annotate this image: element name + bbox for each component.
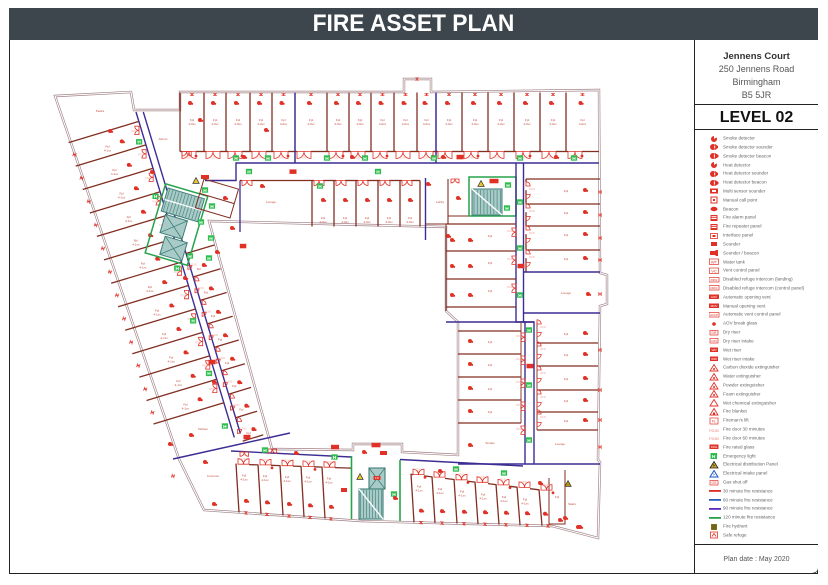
svg-text:FD30: FD30: [138, 154, 145, 157]
svg-text:FD30: FD30: [131, 130, 138, 133]
svg-text:WRI: WRI: [711, 357, 717, 361]
svg-text:Fpl: Fpl: [197, 267, 202, 271]
svg-text:Lobby: Lobby: [436, 200, 445, 204]
svg-text:FD30: FD30: [493, 157, 500, 160]
svg-text:FD30: FD30: [516, 335, 523, 338]
svg-text:FD30: FD30: [458, 474, 465, 477]
svg-text:4-1xx: 4-1xx: [104, 149, 112, 153]
svg-text:H: H: [188, 254, 192, 260]
svg-text:4-0xx: 4-0xx: [497, 122, 505, 126]
svg-text:FD30: FD30: [516, 381, 523, 384]
svg-text:H: H: [234, 156, 238, 162]
svg-text:4-0xx: 4-0xx: [280, 122, 288, 126]
svg-text:H: H: [502, 471, 506, 477]
svg-text:GS: GS: [712, 481, 718, 485]
svg-text:H: H: [527, 438, 531, 444]
svg-text:H: H: [209, 236, 213, 242]
svg-text:FD30: FD30: [529, 188, 536, 191]
svg-text:Fpl: Fpl: [488, 363, 493, 367]
svg-text:FD30: FD30: [415, 468, 422, 471]
svg-text:H: H: [325, 156, 329, 162]
svg-text:Fpl: Fpl: [488, 387, 493, 391]
svg-text:FD30: FD30: [219, 357, 226, 360]
svg-text:H: H: [318, 184, 322, 190]
svg-text:DRIC: DRIC: [710, 287, 718, 291]
svg-text:Fpl: Fpl: [564, 257, 569, 261]
svg-text:FD30: FD30: [543, 484, 550, 487]
svg-text:FD30: FD30: [529, 232, 536, 235]
svg-text:H: H: [191, 319, 195, 325]
svg-text:FD60: FD60: [709, 436, 720, 441]
svg-text:Fpl: Fpl: [239, 408, 244, 412]
svg-text:FD30: FD30: [521, 481, 528, 484]
svg-text:4-1xx: 4-1xx: [479, 496, 487, 500]
svg-text:H: H: [247, 169, 251, 175]
svg-text:4-0xx: 4-0xx: [523, 122, 531, 126]
svg-text:DRI: DRI: [711, 340, 716, 344]
svg-text:Fpl: Fpl: [488, 410, 493, 414]
svg-text:H: H: [572, 156, 576, 162]
svg-text:H: H: [363, 156, 367, 162]
svg-text:4-1xx: 4-1xx: [325, 480, 333, 484]
svg-text:FD30: FD30: [516, 358, 523, 361]
svg-text:FD30: FD30: [540, 372, 547, 375]
svg-text:FD30: FD30: [709, 428, 720, 433]
svg-text:FD30: FD30: [529, 256, 536, 259]
svg-text:4-0xx: 4-0xx: [445, 122, 453, 126]
svg-text:H: H: [518, 246, 522, 252]
svg-text:Lounge: Lounge: [266, 200, 276, 204]
svg-text:FD30: FD30: [540, 348, 547, 351]
svg-text:DRIL: DRIL: [711, 278, 718, 282]
svg-text:4-1xx: 4-1xx: [240, 478, 248, 482]
svg-text:H: H: [376, 169, 380, 175]
svg-text:Lounge: Lounge: [555, 442, 565, 446]
svg-text:AOV: AOV: [711, 295, 717, 299]
svg-text:H: H: [175, 266, 179, 272]
svg-text:FD30: FD30: [152, 201, 159, 204]
svg-text:H: H: [207, 371, 211, 377]
svg-text:H: H: [506, 183, 510, 189]
svg-text:FD30: FD30: [202, 365, 209, 368]
svg-text:4-1xx: 4-1xx: [168, 360, 176, 364]
svg-text:FD30: FD30: [305, 460, 312, 463]
svg-text:4-0xx: 4-0xx: [379, 122, 387, 126]
svg-text:4-1xx: 4-1xx: [458, 494, 466, 498]
svg-text:4-0xx: 4-0xx: [211, 122, 219, 126]
svg-text:H: H: [454, 467, 458, 473]
svg-text:FL: FL: [712, 419, 716, 423]
svg-text:4-0xx: 4-0xx: [257, 122, 265, 126]
svg-text:FD30: FD30: [399, 157, 406, 160]
svg-text:4-1xx: 4-1xx: [415, 489, 423, 493]
svg-text:Fpl: Fpl: [564, 377, 569, 381]
svg-text:H: H: [199, 220, 203, 226]
svg-text:Lounge: Lounge: [561, 291, 571, 295]
svg-text:Fpl: Fpl: [564, 332, 569, 336]
svg-text:FD: FD: [375, 476, 379, 480]
svg-text:4-1xx: 4-1xx: [125, 219, 133, 223]
svg-text:FD30: FD30: [516, 428, 523, 431]
svg-text:Packs: Packs: [96, 109, 105, 113]
svg-text:FD30: FD30: [209, 388, 216, 391]
svg-text:4-0xx: 4-0xx: [579, 122, 587, 126]
svg-text:FD30: FD30: [262, 459, 269, 462]
svg-text:4-0xx: 4-0xx: [402, 122, 410, 126]
svg-text:FRG: FRG: [711, 445, 718, 449]
svg-text:Fpl: Fpl: [555, 495, 560, 499]
svg-text:Fpl: Fpl: [564, 211, 569, 215]
svg-text:4-1xx: 4-1xx: [146, 289, 154, 293]
svg-text:4-1xx: 4-1xx: [160, 336, 168, 340]
svg-text:4-1xx: 4-1xx: [139, 266, 147, 270]
svg-text:Fpl: Fpl: [488, 289, 493, 293]
svg-text:4-0xx: 4-0xx: [385, 220, 393, 224]
svg-text:H: H: [518, 156, 522, 162]
svg-text:H: H: [333, 455, 337, 461]
svg-text:H: H: [154, 194, 158, 200]
svg-text:4-0xx: 4-0xx: [334, 122, 342, 126]
svg-text:FD30: FD30: [332, 157, 339, 160]
svg-text:VC: VC: [711, 268, 717, 273]
svg-text:H: H: [203, 188, 207, 194]
svg-text:Fpl: Fpl: [488, 234, 493, 238]
svg-text:4-0xx: 4-0xx: [356, 122, 364, 126]
svg-text:MOV: MOV: [711, 304, 718, 308]
svg-text:Kitchen: Kitchen: [198, 427, 208, 431]
svg-text:H: H: [527, 383, 531, 389]
svg-text:Fpl: Fpl: [488, 261, 493, 265]
svg-text:FD30: FD30: [507, 286, 514, 289]
svg-text:FD30: FD30: [277, 157, 284, 160]
svg-text:FD30: FD30: [479, 476, 486, 479]
svg-text:4-0xx: 4-0xx: [363, 220, 371, 224]
svg-text:4-0xx: 4-0xx: [319, 220, 327, 224]
svg-text:FD30: FD30: [545, 157, 552, 160]
svg-text:FD30: FD30: [209, 157, 216, 160]
svg-text:H: H: [505, 206, 509, 212]
svg-text:4-1xx: 4-1xx: [283, 479, 291, 483]
svg-text:FD30: FD30: [145, 177, 152, 180]
svg-text:FD30: FD30: [540, 416, 547, 419]
svg-text:4-1xx: 4-1xx: [500, 499, 508, 503]
svg-text:Smoke: Smoke: [485, 441, 495, 445]
svg-text:H: H: [137, 140, 141, 146]
svg-text:4-1xx: 4-1xx: [175, 383, 183, 387]
svg-text:H: H: [263, 448, 267, 454]
svg-text:Fpl: Fpl: [211, 314, 216, 318]
svg-text:FD30: FD30: [540, 326, 547, 329]
svg-text:FD30: FD30: [195, 341, 202, 344]
svg-text:FD30: FD30: [540, 396, 547, 399]
svg-text:4-0xx: 4-0xx: [471, 122, 479, 126]
svg-text:H: H: [207, 256, 211, 262]
svg-text:FD30: FD30: [284, 460, 291, 463]
svg-text:4-1xx: 4-1xx: [111, 172, 119, 176]
svg-text:Fpl: Fpl: [204, 290, 209, 294]
svg-text:Fpl: Fpl: [564, 189, 569, 193]
svg-text:H: H: [432, 156, 436, 162]
svg-text:4-0xx: 4-0xx: [549, 122, 557, 126]
svg-text:FD30: FD30: [185, 157, 192, 160]
svg-text:H: H: [210, 204, 214, 210]
svg-text:Fpl: Fpl: [246, 431, 251, 435]
svg-text:H: H: [527, 328, 531, 334]
svg-text:Fpl: Fpl: [564, 233, 569, 237]
svg-text:FD30: FD30: [255, 157, 262, 160]
svg-text:FD30: FD30: [507, 230, 514, 233]
svg-text:WT: WT: [711, 259, 718, 264]
svg-text:H: H: [518, 200, 522, 206]
svg-text:FD30: FD30: [529, 210, 536, 213]
svg-text:4-1xx: 4-1xx: [132, 242, 140, 246]
svg-text:4-1xx: 4-1xx: [153, 313, 161, 317]
svg-text:Common: Common: [207, 474, 220, 478]
svg-text:FD30: FD30: [507, 258, 514, 261]
svg-text:4-1xx: 4-1xx: [521, 501, 529, 505]
svg-text:Fpl: Fpl: [564, 353, 569, 357]
svg-text:FD30: FD30: [241, 428, 248, 431]
svg-text:FD30: FD30: [516, 404, 523, 407]
svg-text:4-0xx: 4-0xx: [406, 220, 414, 224]
svg-text:H: H: [223, 424, 227, 430]
svg-text:Atrium: Atrium: [159, 137, 168, 141]
svg-text:4-0xx: 4-0xx: [188, 122, 196, 126]
svg-text:WR: WR: [712, 348, 718, 352]
svg-text:FD30: FD30: [300, 157, 307, 160]
svg-text:Stairs: Stairs: [568, 502, 576, 506]
svg-text:FD30: FD30: [191, 263, 198, 266]
svg-text:Fpl: Fpl: [218, 337, 223, 341]
svg-text:Fpl: Fpl: [225, 361, 230, 365]
svg-text:H: H: [266, 156, 270, 162]
svg-text:H: H: [518, 293, 522, 299]
svg-text:FD30: FD30: [205, 310, 212, 313]
svg-text:FD30: FD30: [240, 458, 247, 461]
svg-text:4-1xx: 4-1xx: [182, 406, 190, 410]
svg-text:FD30: FD30: [500, 479, 507, 482]
svg-text:DR: DR: [712, 331, 717, 335]
svg-text:4-1xx: 4-1xx: [436, 491, 444, 495]
svg-text:4-0xx: 4-0xx: [234, 122, 242, 126]
svg-text:FD30: FD30: [467, 157, 474, 160]
svg-text:FD30: FD30: [422, 157, 429, 160]
svg-text:4-1xx: 4-1xx: [304, 480, 312, 484]
svg-text:4-0xx: 4-0xx: [423, 122, 431, 126]
svg-text:FD30: FD30: [376, 157, 383, 160]
svg-text:FD30: FD30: [233, 404, 240, 407]
svg-text:FD30: FD30: [181, 294, 188, 297]
svg-text:4-1xx: 4-1xx: [261, 478, 269, 482]
svg-text:Fpl: Fpl: [232, 384, 237, 388]
svg-text:Fpl: Fpl: [564, 419, 569, 423]
svg-text:FD30: FD30: [326, 461, 333, 464]
svg-text:4-0xx: 4-0xx: [307, 122, 315, 126]
svg-text:4-0xx: 4-0xx: [341, 220, 349, 224]
svg-text:Fpl: Fpl: [488, 340, 493, 344]
svg-text:Fpl: Fpl: [564, 399, 569, 403]
svg-text:4-1xx: 4-1xx: [118, 195, 126, 199]
svg-text:AVCP: AVCP: [710, 313, 718, 317]
